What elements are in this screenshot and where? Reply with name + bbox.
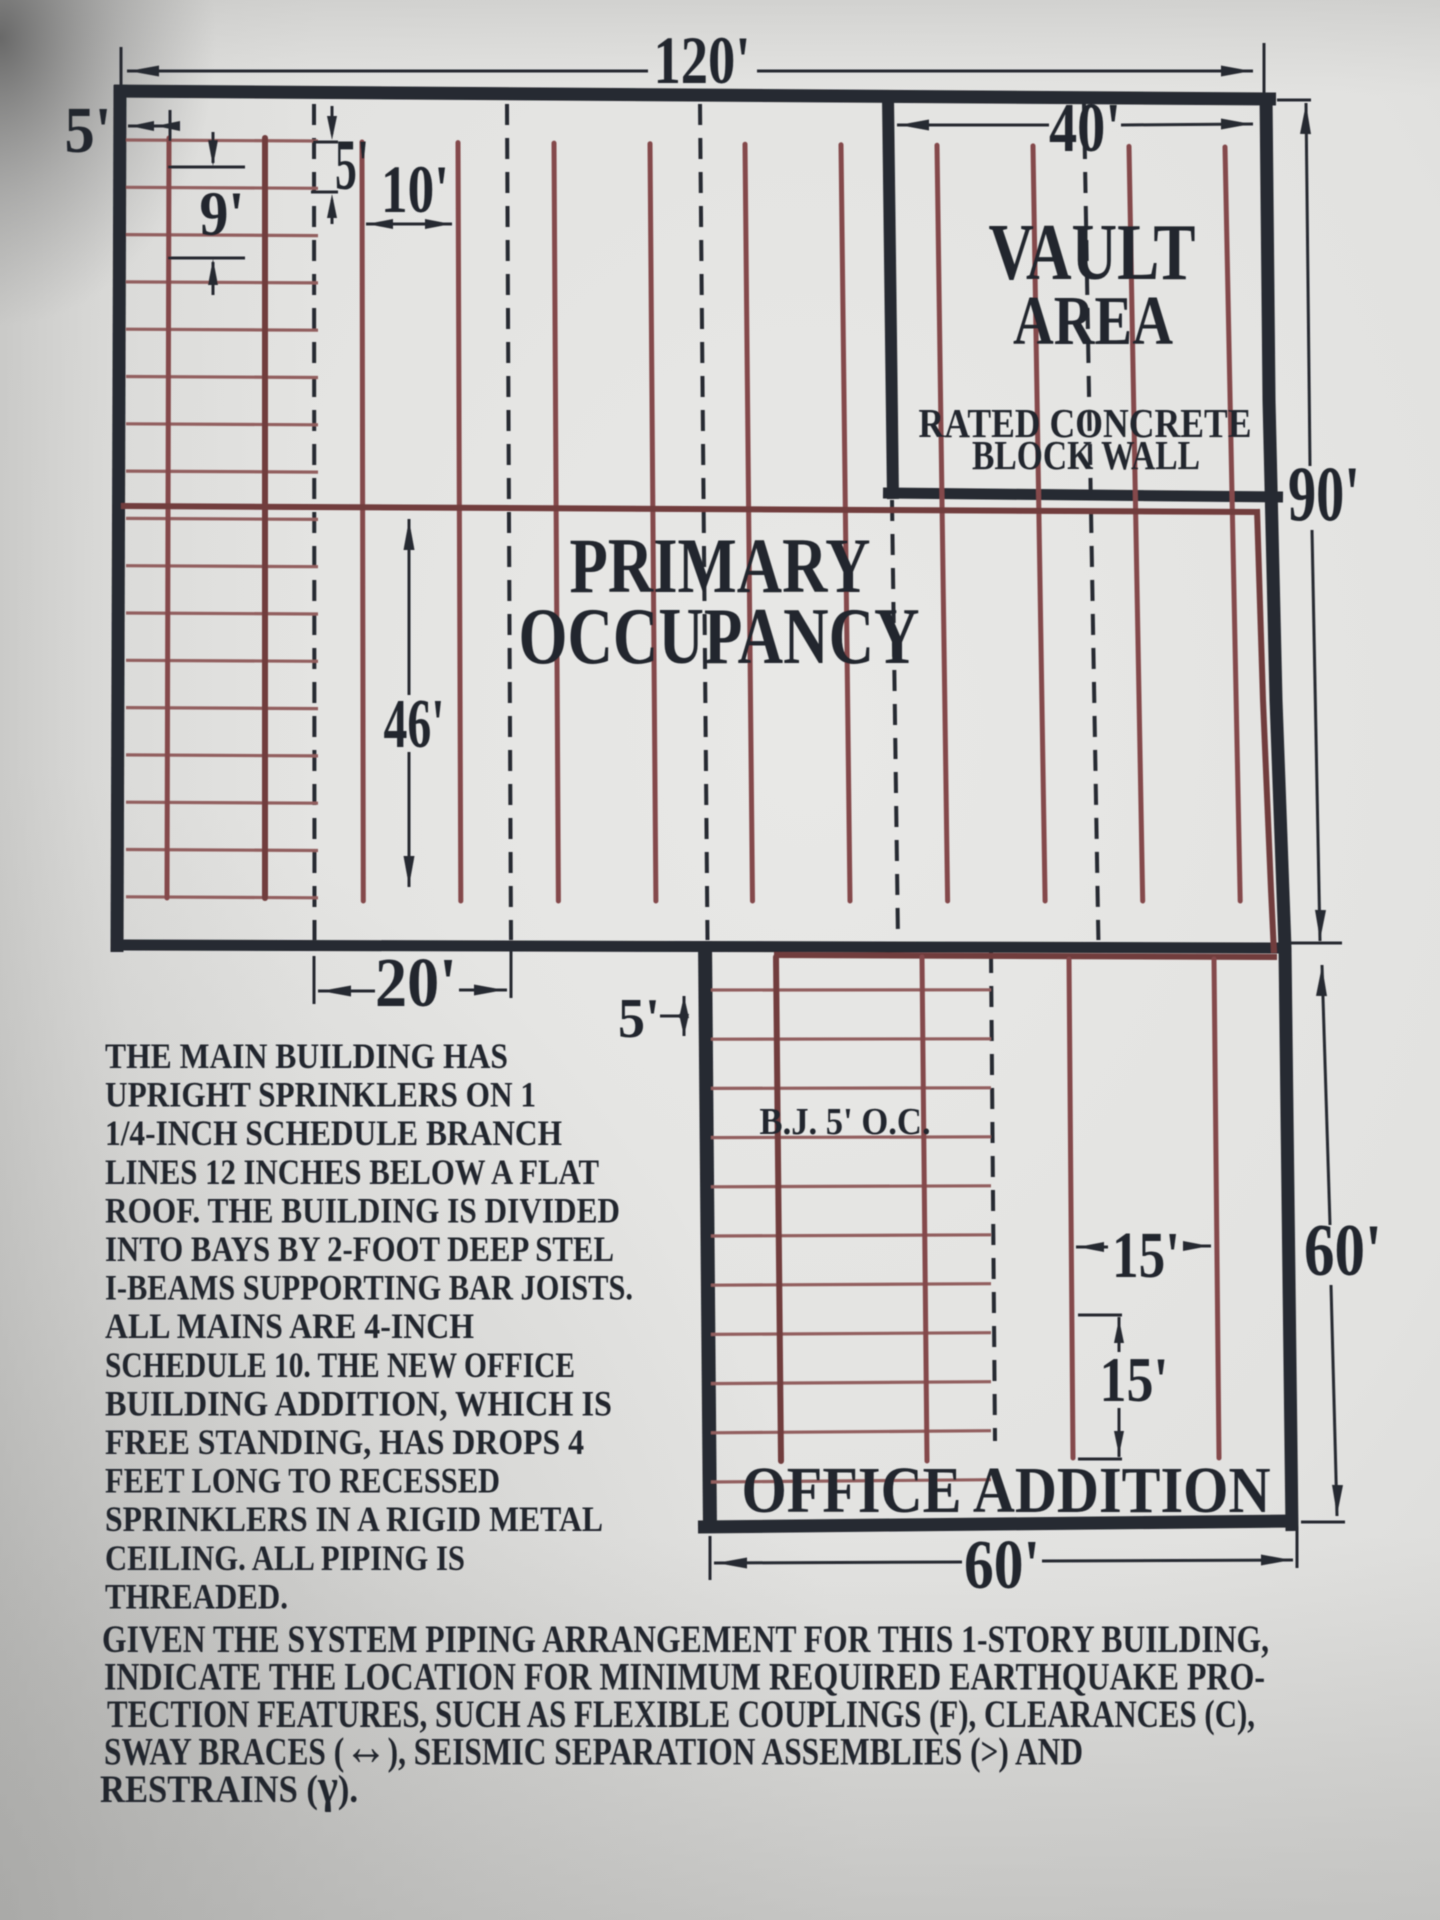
- svg-text:RESTRAINS (γ).: RESTRAINS (γ).: [100, 1760, 358, 1813]
- svg-text:40': 40': [1049, 90, 1121, 167]
- svg-text:5': 5': [618, 988, 660, 1050]
- svg-text:9': 9': [200, 178, 245, 249]
- svg-text:UPRIGHT SPRINKLERS ON 1: UPRIGHT SPRINKLERS ON 1: [105, 1075, 536, 1115]
- svg-text:20': 20': [375, 945, 457, 1022]
- svg-text:BLOCK WALL: BLOCK WALL: [972, 432, 1200, 478]
- svg-text:46': 46': [384, 686, 445, 763]
- svg-text:LINES 12 INCHES BELOW A FLAT: LINES 12 INCHES BELOW A FLAT: [105, 1152, 599, 1192]
- svg-text:120': 120': [654, 22, 751, 98]
- svg-text:5': 5': [335, 125, 369, 205]
- svg-text:OCCUPANCY: OCCUPANCY: [519, 593, 920, 681]
- svg-text:5': 5': [65, 94, 112, 167]
- svg-text:THE MAIN BUILDING HAS: THE MAIN BUILDING HAS: [105, 1036, 508, 1076]
- svg-text:60': 60': [964, 1527, 1040, 1604]
- svg-text:OFFICE ADDITION: OFFICE ADDITION: [742, 1454, 1271, 1527]
- svg-text:CEILING. ALL PIPING IS: CEILING. ALL PIPING IS: [105, 1538, 465, 1578]
- svg-text:I-BEAMS SUPPORTING BAR JOISTS.: I-BEAMS SUPPORTING BAR JOISTS.: [105, 1268, 633, 1308]
- svg-text:ROOF. THE BUILDING IS DIVIDED: ROOF. THE BUILDING IS DIVIDED: [105, 1190, 620, 1230]
- svg-text:INTO BAYS BY 2-FOOT DEEP STEL: INTO BAYS BY 2-FOOT DEEP STEL: [105, 1229, 614, 1269]
- svg-text:B.J. 5' O.C.: B.J. 5' O.C.: [760, 1101, 931, 1143]
- svg-text:15': 15': [1100, 1344, 1169, 1415]
- svg-text:THREADED.: THREADED.: [105, 1576, 288, 1616]
- svg-text:60': 60': [1304, 1210, 1382, 1292]
- svg-text:FREE STANDING, HAS DROPS 4: FREE STANDING, HAS DROPS 4: [105, 1422, 584, 1462]
- svg-text:SCHEDULE 10. THE NEW OFFICE: SCHEDULE 10. THE NEW OFFICE: [105, 1345, 575, 1385]
- svg-text:ALL MAINS ARE 4-INCH: ALL MAINS ARE 4-INCH: [105, 1306, 474, 1346]
- svg-text:10': 10': [381, 151, 449, 227]
- svg-text:FEET LONG TO RECESSED: FEET LONG TO RECESSED: [105, 1461, 500, 1501]
- svg-text:90': 90': [1288, 450, 1360, 537]
- svg-text:AREA: AREA: [1013, 283, 1173, 360]
- svg-text:1/4-INCH SCHEDULE BRANCH: 1/4-INCH SCHEDULE BRANCH: [105, 1113, 562, 1153]
- svg-text:15': 15': [1112, 1219, 1180, 1292]
- svg-text:BUILDING ADDITION, WHICH IS: BUILDING ADDITION, WHICH IS: [105, 1383, 612, 1423]
- svg-text:SPRINKLERS IN A RIGID METAL: SPRINKLERS IN A RIGID METAL: [105, 1499, 603, 1539]
